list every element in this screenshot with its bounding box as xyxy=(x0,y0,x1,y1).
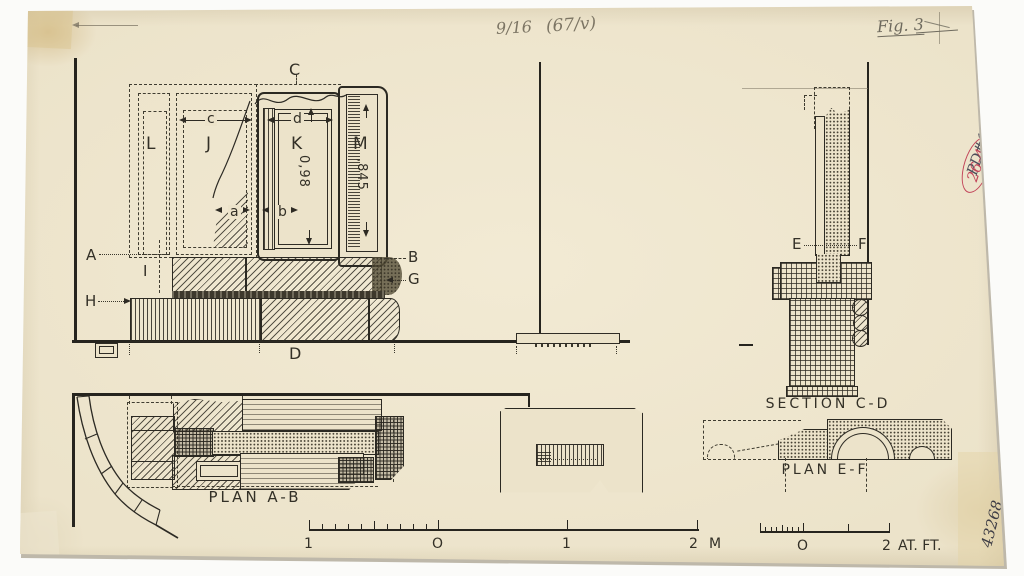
section-thin-strip xyxy=(815,116,825,256)
dim-label-a: a xyxy=(228,205,241,219)
threshold-tick-right xyxy=(616,346,617,354)
section-stipple-column xyxy=(824,108,850,256)
label-D: D xyxy=(289,346,301,362)
planAB-dark-mid xyxy=(174,428,214,457)
a-section-dotted-line xyxy=(99,254,169,255)
label-L: L xyxy=(146,136,155,153)
label-G: G xyxy=(408,272,420,287)
metric-tick xyxy=(348,524,349,529)
curved-wall-band xyxy=(68,394,180,540)
base-tick-mid xyxy=(259,344,260,353)
dim-c-arrow-left-icon xyxy=(179,117,186,123)
frame-line-left xyxy=(74,58,77,342)
label-K: K xyxy=(291,136,302,153)
figure-number-note: Fig. 3 xyxy=(877,17,925,37)
base-block-upper-right xyxy=(245,257,382,295)
m-dim-arrow-down-icon xyxy=(363,230,369,237)
dim-value-m-height: ,845 xyxy=(355,158,368,214)
g-leader-line xyxy=(392,280,406,281)
b-section-dash-line xyxy=(385,258,406,259)
metric-tick xyxy=(374,521,375,529)
base-tick-left xyxy=(129,344,130,355)
threshold-tick-left xyxy=(516,346,517,354)
attic-unit: AT. FT. xyxy=(898,539,941,553)
section-ground-stub xyxy=(739,344,753,346)
label-C: C xyxy=(289,62,300,78)
metric-scale-line xyxy=(309,529,699,531)
attic-tick xyxy=(776,527,777,531)
tape-mark-bottom-left xyxy=(14,511,59,560)
metric-tick xyxy=(413,524,414,529)
rubble-stone-1 xyxy=(852,299,869,316)
section-socle-lower xyxy=(789,298,855,392)
threshold-block xyxy=(516,333,620,344)
handwritten-paren-note: (67/v) xyxy=(545,15,596,35)
mortar-joint-band xyxy=(172,291,385,298)
base-block-lower-mid xyxy=(260,298,370,342)
metric-tick xyxy=(361,524,362,529)
h-leader-line xyxy=(98,301,126,302)
pencil-tick-fig xyxy=(939,12,940,44)
dim-d-arrow-right-icon xyxy=(326,117,333,123)
attic-tick xyxy=(760,523,761,531)
attic-scale-line xyxy=(760,531,890,533)
handwritten-fraction-note: 9/16 xyxy=(496,19,533,37)
rubble-stone-3 xyxy=(852,330,869,347)
metric-label-0: O xyxy=(432,537,443,551)
ef-dotted-line xyxy=(804,245,857,246)
dim-a-arrow-left-icon xyxy=(215,207,222,213)
rubble-stone-2 xyxy=(853,315,869,331)
metric-tick xyxy=(322,524,323,529)
base-block-lower-left xyxy=(130,298,262,342)
label-F: F xyxy=(858,237,867,252)
metric-tick xyxy=(426,524,427,529)
attic-tick xyxy=(889,523,890,531)
attic-tick xyxy=(787,527,788,531)
block-detail-centerline xyxy=(540,459,596,460)
dim-a-arrow-right-icon xyxy=(243,207,250,213)
metric-tick xyxy=(335,524,336,529)
dim-c-arrow-right-icon xyxy=(245,117,252,123)
drawing-paper-sheet: 9/16 (67/v) Fig. 3 PD#1747 26-4 43268 C … xyxy=(0,0,1024,576)
section-tenon xyxy=(816,254,841,283)
planAB-dark-right xyxy=(375,416,404,480)
i-dashed-vertical xyxy=(159,240,160,293)
metric-label-1l: 1 xyxy=(304,537,313,551)
metric-tick xyxy=(697,520,698,529)
pencil-arrow-icon xyxy=(72,22,79,28)
k-dim-arrow-up-icon xyxy=(308,108,314,115)
dim-label-c: c xyxy=(205,112,217,126)
planAB-wood-top xyxy=(242,399,382,431)
section-title: SECTION C-D xyxy=(760,397,896,411)
dim-d-arrow-left-icon xyxy=(267,117,274,123)
planAB-recess-inner xyxy=(200,465,238,477)
attic-label-2: 2 xyxy=(882,539,891,553)
base-tick-right xyxy=(394,344,395,353)
label-I: I xyxy=(143,264,147,279)
pencil-line-top-left xyxy=(76,25,138,26)
metric-unit: M xyxy=(709,537,721,551)
dim-value-k-height: 0,98 xyxy=(297,155,310,209)
label-J: J xyxy=(206,136,211,153)
frame-line-center xyxy=(539,62,541,340)
attic-tick xyxy=(765,527,766,531)
k-dim-arrow-down-icon xyxy=(306,238,312,245)
metric-label-1r: 1 xyxy=(562,537,571,551)
metric-tick xyxy=(400,524,401,529)
planAB-title: PLAN A-B xyxy=(200,490,310,505)
red-accession-stamp: 26-4 xyxy=(956,133,999,196)
tape-mark-top-left xyxy=(25,7,73,49)
planAB-dashed-right xyxy=(393,420,394,482)
metric-label-2: 2 xyxy=(689,537,698,551)
base-block-upper-left xyxy=(172,257,247,295)
metric-tick xyxy=(438,520,439,529)
dim-b-arrow-left-icon xyxy=(262,207,269,213)
attic-tick xyxy=(792,527,793,531)
label-M: M xyxy=(353,136,368,153)
planAB-stipple-strip xyxy=(212,431,379,455)
planEF-centerline-right xyxy=(866,458,867,492)
base-block-lower-right xyxy=(368,298,400,342)
metric-tick xyxy=(387,524,388,529)
label-H: H xyxy=(85,294,96,309)
block-detail-slot-end xyxy=(537,452,551,463)
label-E: E xyxy=(792,237,801,252)
panel-L-inner-dashed xyxy=(143,111,167,255)
planAB-dark-small xyxy=(338,457,374,483)
rough-stone-end xyxy=(372,257,402,295)
attic-tick xyxy=(848,524,849,531)
plan-frame-drop xyxy=(528,393,530,407)
threshold-dotted-row xyxy=(535,344,593,347)
attic-tick xyxy=(782,525,783,531)
attic-label-0: O xyxy=(797,539,808,553)
attic-tick xyxy=(771,527,772,531)
g-arrow-icon xyxy=(386,277,393,283)
attic-tick xyxy=(798,527,799,531)
planEF-title: PLAN E-F xyxy=(775,463,875,477)
label-B: B xyxy=(408,250,418,265)
planAB-dashed-bottom xyxy=(172,486,378,487)
label-A: A xyxy=(86,248,96,263)
dim-label-b: b xyxy=(276,205,289,219)
plinth-mark-inner xyxy=(99,346,114,354)
metric-tick xyxy=(309,520,310,529)
h-arrow-icon xyxy=(124,298,131,304)
strikethrough-scribble-2 xyxy=(924,21,950,28)
section-dashed-step xyxy=(804,95,817,110)
dim-label-d: d xyxy=(291,112,304,126)
metric-tick xyxy=(567,520,568,529)
planEF-centerline-left xyxy=(785,458,786,492)
attic-tick xyxy=(803,523,804,531)
